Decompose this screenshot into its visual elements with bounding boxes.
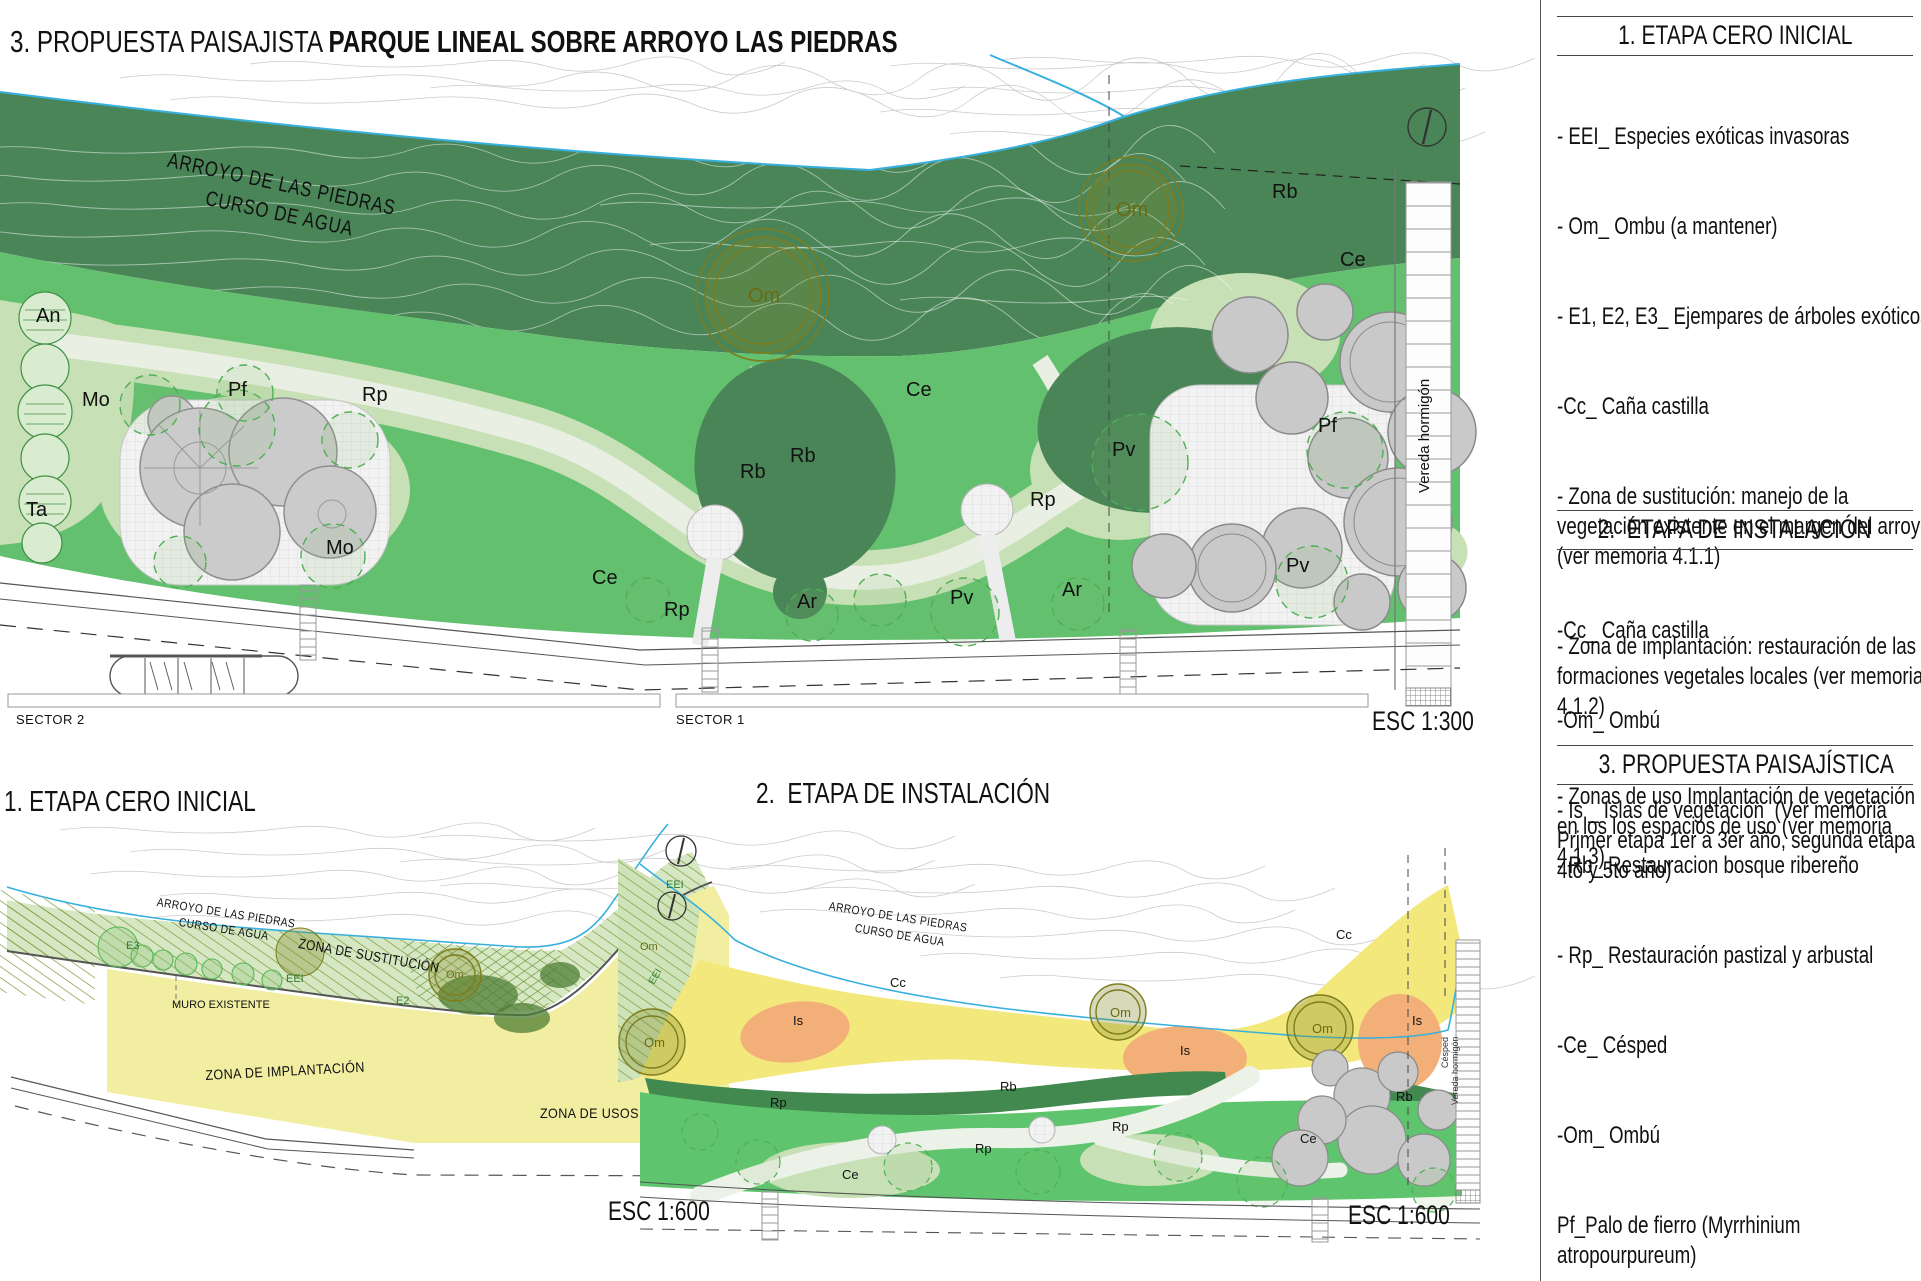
legend-item: - EEI_ Especies exóticas invasoras <box>1557 122 1921 152</box>
plan2-label: Is <box>793 1014 803 1027</box>
map-label-om: Om <box>748 286 780 306</box>
scale-bar-sector2 <box>8 694 660 707</box>
parking-bay <box>110 656 298 696</box>
plan2-cesped-label: Césped <box>1440 1010 1450 1068</box>
map-label: Rp <box>664 600 690 620</box>
plan1-tag: EEI <box>286 974 304 985</box>
plan2-label-om: Om <box>644 1036 665 1049</box>
legend-section-3: 3. PROPUESTA PAISAJÍSTICA - Rb_ Restaura… <box>1557 745 1913 1281</box>
legend-section-3-title: 3. PROPUESTA PAISAJÍSTICA <box>1557 745 1913 785</box>
plan2-label: Rb <box>1396 1090 1413 1103</box>
legend-item: -Cc_ Caña castilla <box>1557 392 1921 422</box>
legend-item: -Cc_ Caña castilla <box>1557 616 1921 646</box>
paved-circle-1 <box>687 505 743 561</box>
scale-bar-sector1 <box>676 694 1368 707</box>
map-label: Mo <box>82 390 110 410</box>
plan2-label: Is <box>1180 1044 1190 1057</box>
plan1-tag: E2 <box>396 996 409 1007</box>
map-label-om: Om <box>1116 200 1148 220</box>
map-label: Pf <box>1318 416 1337 436</box>
sheet-title: 3. PROPUESTA PAISAJISTA PARQUE LINEAL SO… <box>10 24 1148 60</box>
plan1-hatch-left-wedge <box>0 890 95 1005</box>
plan1-muro-label: MURO EXISTENTE <box>172 1000 270 1011</box>
legend-item: -Om_ Ombú <box>1557 706 1921 736</box>
plan1-tag-om: Om <box>446 970 464 981</box>
legend-section-3-items: - Rb_ Restauracion bosque ribereño - Rp_… <box>1557 791 1921 1281</box>
legend-item: - Rp_ Restauración pastizal y arbustal <box>1557 941 1921 971</box>
plan1-tag: EEI <box>666 880 684 891</box>
map-label: Rp <box>362 385 388 405</box>
map-label: Pv <box>950 588 973 608</box>
plan2-title: 2. ETAPA DE INSTALACIÓN <box>756 778 1133 811</box>
plan2-label: Rp <box>975 1142 992 1155</box>
map-label: Ar <box>1062 580 1082 600</box>
legend-item: - E1, E2, E3_ Ejempares de árboles exóti… <box>1557 302 1921 332</box>
map-label: Pv <box>1112 440 1135 460</box>
plan2-label: Cc <box>890 976 906 989</box>
map-label: Ta <box>26 500 47 520</box>
plan1-title: 1. ETAPA CERO INICIAL <box>4 786 327 819</box>
map-label: Ce <box>906 380 932 400</box>
sheet-title-prefix: 3. PROPUESTA PAISAJISTA <box>10 24 328 59</box>
plan2-paved-circle-2 <box>1029 1117 1055 1143</box>
map-label: Ce <box>1340 250 1366 270</box>
sector1-label: SECTOR 1 <box>676 712 745 727</box>
plan2-stairs-2 <box>1312 1198 1328 1242</box>
plan2-vereda-label: Vereda hormigón <box>1450 995 1460 1105</box>
plan1-tag-om: Om <box>640 942 658 953</box>
sheet-title-main: PARQUE LINEAL SOBRE ARROYO LAS PIEDRAS <box>328 24 897 59</box>
plan2-label: Cc <box>1336 928 1352 941</box>
plan2-stairs-1 <box>762 1192 778 1240</box>
plan2-label-om: Om <box>1110 1006 1131 1019</box>
plan2-label: Is <box>1412 1014 1422 1027</box>
paved-circle-2 <box>961 484 1013 536</box>
drawing-sheet: 3. PROPUESTA PAISAJISTA PARQUE LINEAL SO… <box>0 0 1921 1281</box>
plan2-label: Ce <box>1300 1132 1317 1145</box>
main-plan-scale: ESC 1:300 <box>1372 706 1503 737</box>
plan1-zona-usos: ZONA DE USOS <box>540 1106 639 1120</box>
plan2-label: Rp <box>1112 1120 1129 1133</box>
legend-item: - Rb_ Restauracion bosque ribereño <box>1557 851 1921 881</box>
legend-item: Pf_Palo de fierro (Myrrhinium atropourpu… <box>1557 1211 1921 1271</box>
map-label: Ce <box>592 568 618 588</box>
map-label: Ar <box>797 592 817 612</box>
legend-sidebar: 1. ETAPA CERO INICIAL - EEI_ Especies ex… <box>1540 0 1921 1281</box>
stream-tributary <box>990 55 1125 117</box>
map-label: An <box>36 306 60 326</box>
legend-item: - Om_ Ombu (a mantener) <box>1557 212 1921 242</box>
map-label: Pv <box>1286 556 1309 576</box>
map-label: Mo <box>326 538 354 558</box>
plan1-tag: E3 <box>126 941 139 952</box>
map-label: Pf <box>228 380 247 400</box>
legend-section-1-title: 1. ETAPA CERO INICIAL <box>1557 16 1913 56</box>
legend-item: -Om_ Ombú <box>1557 1121 1921 1151</box>
map-label: Rb <box>740 462 766 482</box>
map-label: Rb <box>790 446 816 466</box>
legend-item: -Ce_ Césped <box>1557 1031 1921 1061</box>
vereda-hormigon-label: Vereda hormigón <box>1416 358 1433 493</box>
sector2-label: SECTOR 2 <box>16 712 85 727</box>
map-label: Rb <box>1272 182 1298 202</box>
plan2-label-om: Om <box>1312 1022 1333 1035</box>
legend-section-2-title: 2. ETAPA DE INSTALACIÓN <box>1557 510 1913 550</box>
plan2-label: Rb <box>1000 1080 1017 1093</box>
map-label: Rp <box>1030 490 1056 510</box>
plan2-label: Ce <box>842 1168 859 1181</box>
vereda-crosshatch <box>1406 688 1451 706</box>
plan2-scale: ESC 1:600 <box>1348 1200 1479 1231</box>
plan1-scale: ESC 1:600 <box>608 1196 739 1227</box>
plan2-label: Rp <box>770 1096 787 1109</box>
